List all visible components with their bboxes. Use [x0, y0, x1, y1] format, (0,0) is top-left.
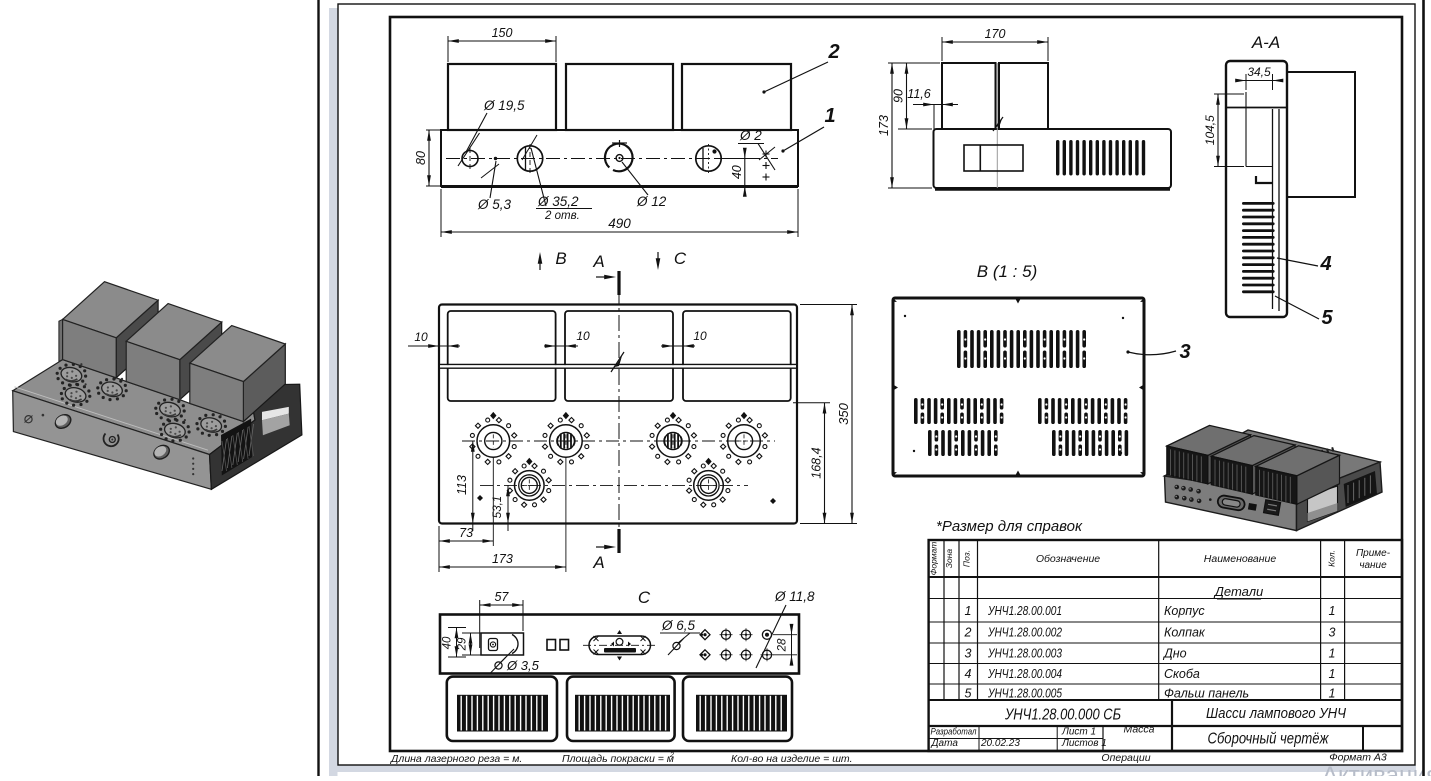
svg-text:73: 73	[459, 526, 473, 540]
svg-text:Операции: Операции	[1101, 752, 1150, 764]
svg-text:4: 4	[1319, 253, 1331, 275]
svg-text:Сборочный чертёж: Сборочный чертёж	[1208, 731, 1330, 748]
svg-text:А-А: А-А	[1251, 33, 1280, 52]
svg-text:Ø 11,8: Ø 11,8	[774, 589, 815, 604]
svg-text:4: 4	[965, 667, 972, 681]
svg-text:УНЧ1.28.00.001: УНЧ1.28.00.001	[987, 604, 1062, 618]
svg-text:173: 173	[492, 552, 513, 566]
svg-text:Формат: Формат	[929, 542, 939, 576]
svg-text:20.02.23: 20.02.23	[980, 738, 1020, 749]
svg-text:10: 10	[414, 330, 428, 344]
svg-text:Ø 5,3: Ø 5,3	[477, 197, 512, 212]
svg-text:Детали: Детали	[1213, 584, 1264, 599]
svg-text:Дно: Дно	[1162, 647, 1187, 661]
svg-text:3: 3	[965, 647, 972, 661]
svg-text:УНЧ1.28.00.004: УНЧ1.28.00.004	[987, 667, 1062, 681]
svg-text:Обозначение: Обозначение	[1036, 553, 1100, 565]
svg-text:Приме-: Приме-	[1356, 548, 1391, 559]
svg-text:В (1 : 5): В (1 : 5)	[977, 262, 1037, 281]
svg-text:Фальш панель: Фальш панель	[1164, 687, 1249, 701]
svg-text:Ø 12: Ø 12	[636, 194, 667, 209]
svg-text:*Размер для справок: *Размер для справок	[936, 518, 1083, 535]
svg-text:С: С	[674, 249, 687, 268]
svg-text:Длина лазерного реза = м.: Длина лазерного реза = м.	[390, 753, 522, 765]
svg-text:Площадь покраски = м: Площадь покраски = м	[562, 753, 674, 765]
svg-text:34,5: 34,5	[1247, 65, 1271, 79]
svg-text:Разработал: Разработал	[931, 727, 978, 738]
svg-text:11,6: 11,6	[907, 87, 930, 101]
svg-text:10: 10	[693, 329, 707, 343]
svg-text:Формат А3: Формат А3	[1329, 752, 1387, 764]
svg-text:80: 80	[414, 151, 428, 165]
svg-text:3: 3	[1329, 626, 1336, 640]
svg-text:Скоба: Скоба	[1164, 667, 1200, 681]
svg-text:2: 2	[964, 626, 972, 640]
svg-text:1: 1	[1329, 667, 1336, 681]
svg-text:Колпак: Колпак	[1164, 626, 1206, 640]
svg-text:УНЧ1.28.00.002: УНЧ1.28.00.002	[987, 626, 1062, 640]
svg-text:170: 170	[985, 27, 1006, 41]
svg-text:Масса: Масса	[1123, 724, 1154, 736]
svg-text:чание: чание	[1359, 560, 1387, 571]
svg-text:В: В	[555, 249, 566, 268]
svg-text:168,4: 168,4	[810, 447, 824, 478]
svg-text:173: 173	[877, 115, 891, 136]
svg-text:Корпус: Корпус	[1164, 604, 1205, 618]
svg-text:Дата: Дата	[931, 738, 959, 749]
svg-text:2: 2	[669, 752, 674, 759]
svg-text:40: 40	[730, 165, 744, 179]
svg-text:Лист 1: Лист 1	[1061, 727, 1096, 738]
svg-text:А: А	[592, 252, 604, 271]
svg-text:2 отв.: 2 отв.	[544, 210, 580, 222]
svg-text:350: 350	[836, 402, 851, 424]
svg-text:1: 1	[824, 105, 835, 127]
svg-text:3: 3	[1179, 341, 1190, 363]
svg-text:А: А	[592, 553, 604, 572]
svg-text:Зона: Зона	[944, 549, 954, 569]
svg-text:2: 2	[827, 41, 839, 63]
svg-text:Ø 2: Ø 2	[739, 128, 762, 143]
svg-text:90: 90	[892, 89, 906, 103]
svg-text:Кол.: Кол.	[1327, 550, 1337, 567]
svg-text:5: 5	[965, 687, 972, 701]
svg-text:1: 1	[1329, 687, 1336, 701]
svg-text:57: 57	[494, 590, 509, 604]
svg-text:Поз.: Поз.	[962, 550, 972, 567]
svg-text:УНЧ1.28.00.003: УНЧ1.28.00.003	[987, 647, 1062, 661]
svg-text:Ø 6,5: Ø 6,5	[661, 618, 696, 633]
svg-text:Наименование: Наименование	[1204, 553, 1277, 565]
svg-text:1: 1	[1329, 604, 1336, 618]
svg-text:28: 28	[777, 638, 789, 652]
svg-text:Ø 19,5: Ø 19,5	[483, 98, 525, 113]
svg-text:104,5: 104,5	[1203, 115, 1217, 145]
svg-text:1: 1	[1329, 647, 1336, 661]
svg-text:С: С	[638, 588, 651, 607]
svg-text:Кол-во на изделие = шт.: Кол-во на изделие = шт.	[731, 753, 852, 765]
svg-text:5: 5	[1321, 307, 1333, 329]
svg-text:Ø 3,5: Ø 3,5	[506, 658, 540, 673]
svg-text:150: 150	[492, 26, 513, 40]
svg-text:40: 40	[442, 636, 454, 649]
svg-text:Шасси лампового УНЧ: Шасси лампового УНЧ	[1206, 706, 1346, 722]
svg-text:490: 490	[608, 216, 631, 231]
svg-text:1: 1	[965, 604, 972, 618]
svg-text:113: 113	[455, 475, 469, 495]
svg-text:УНЧ1.28.00.005: УНЧ1.28.00.005	[987, 687, 1062, 701]
svg-text:29: 29	[457, 637, 469, 651]
svg-text:УНЧ1.28.00.000 СБ: УНЧ1.28.00.000 СБ	[1004, 707, 1121, 724]
svg-text:Листов 1: Листов 1	[1061, 738, 1107, 749]
svg-text:10: 10	[576, 329, 590, 343]
svg-text:53,1: 53,1	[492, 496, 504, 518]
